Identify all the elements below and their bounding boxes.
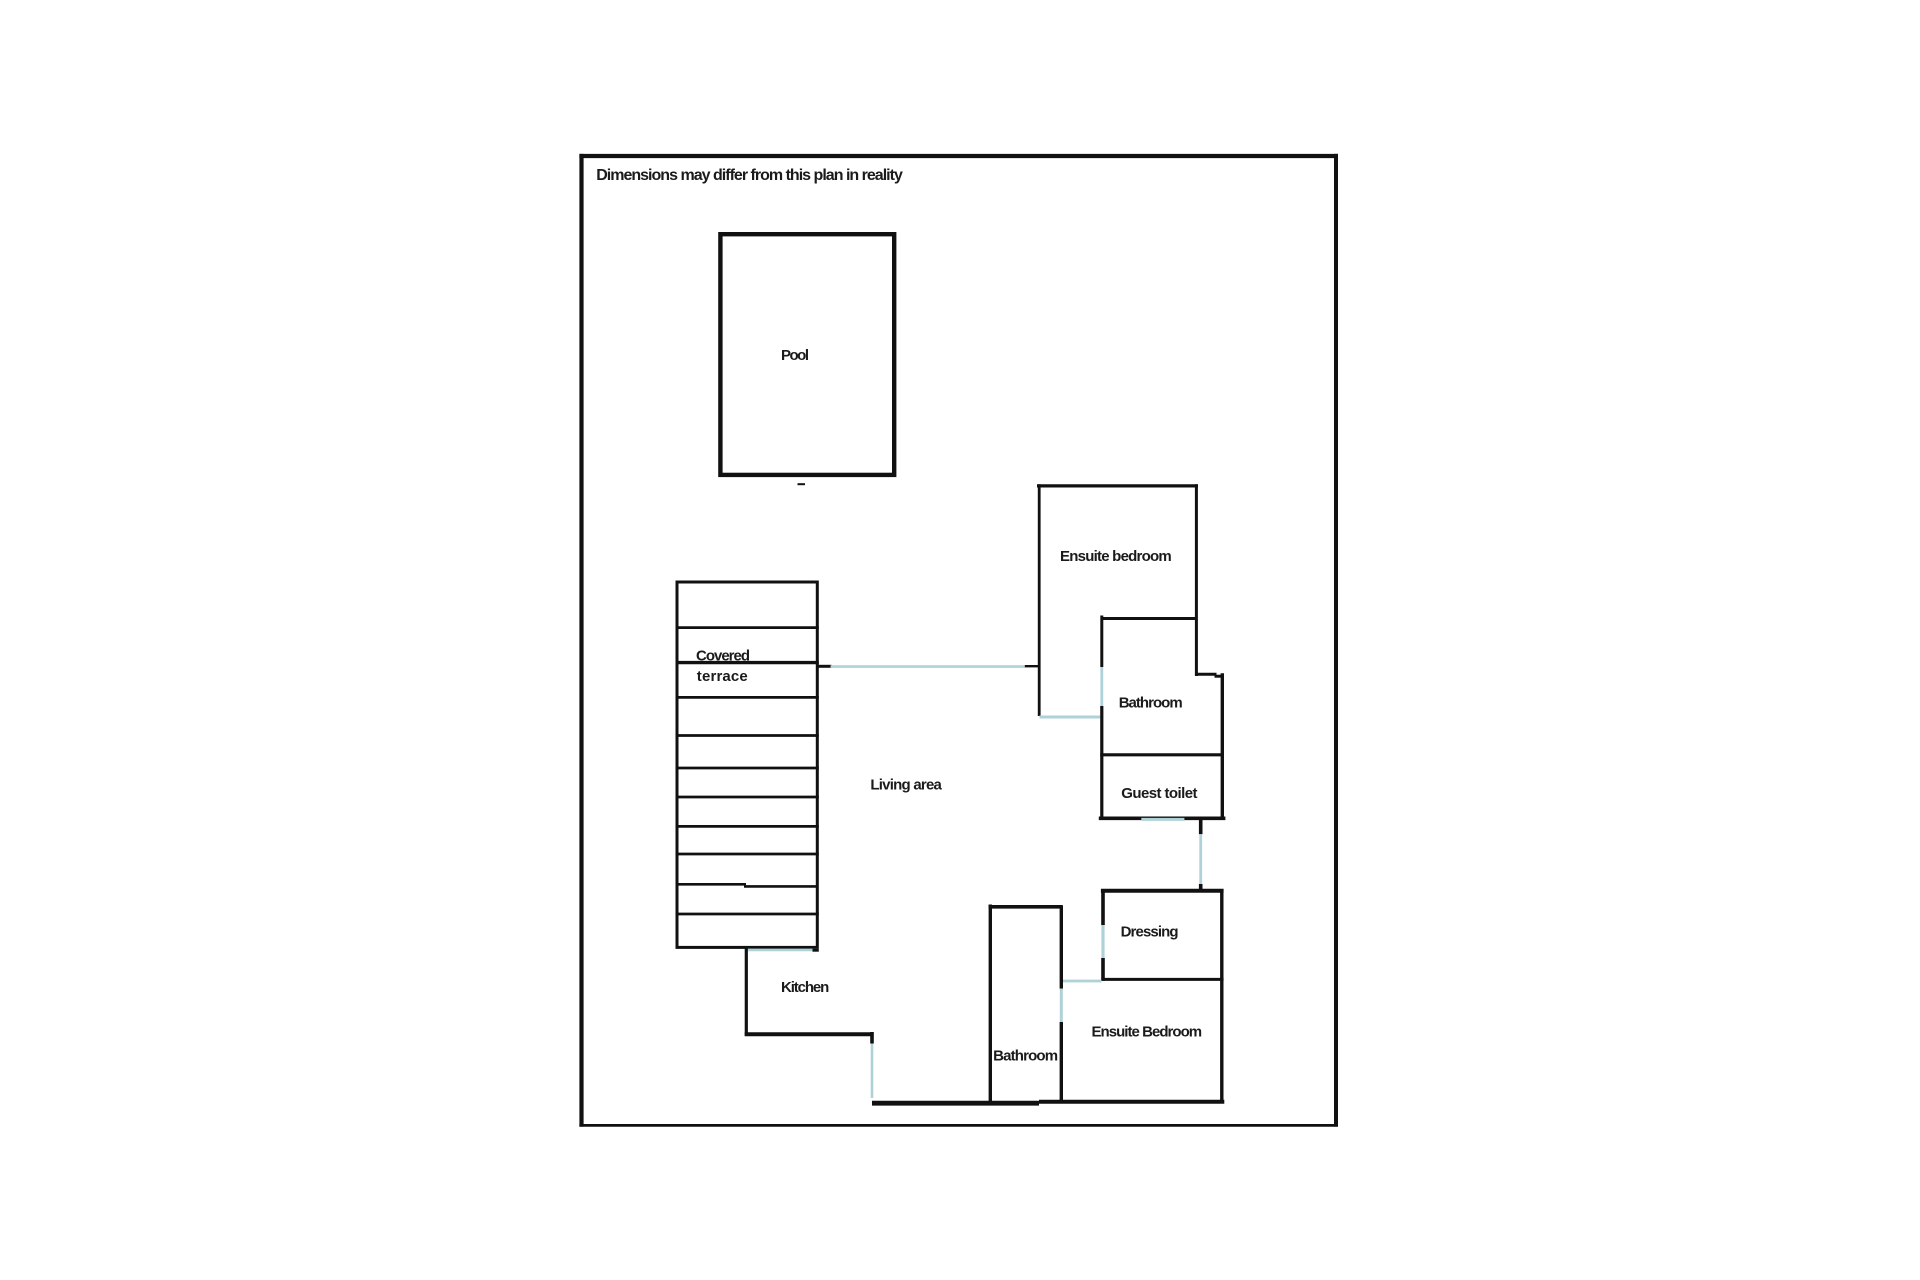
svg-text:Dressing: Dressing [1121,923,1179,940]
svg-text:Ensuite Bedroom: Ensuite Bedroom [1092,1024,1202,1041]
svg-text:Pool: Pool [781,347,809,364]
svg-text:Bathroom: Bathroom [993,1048,1058,1065]
svg-text:Dimensions may differ from thi: Dimensions may differ from this plan in … [596,167,903,184]
svg-text:Living area: Living area [870,777,942,794]
svg-text:Guest toilet: Guest toilet [1121,785,1197,802]
svg-text:Bathroom: Bathroom [1119,695,1183,712]
svg-text:Kitchen: Kitchen [781,979,829,996]
svg-text:terrace: terrace [697,668,748,685]
svg-text:Ensuite bedroom: Ensuite bedroom [1060,548,1171,565]
svg-text:Covered: Covered [696,648,750,665]
